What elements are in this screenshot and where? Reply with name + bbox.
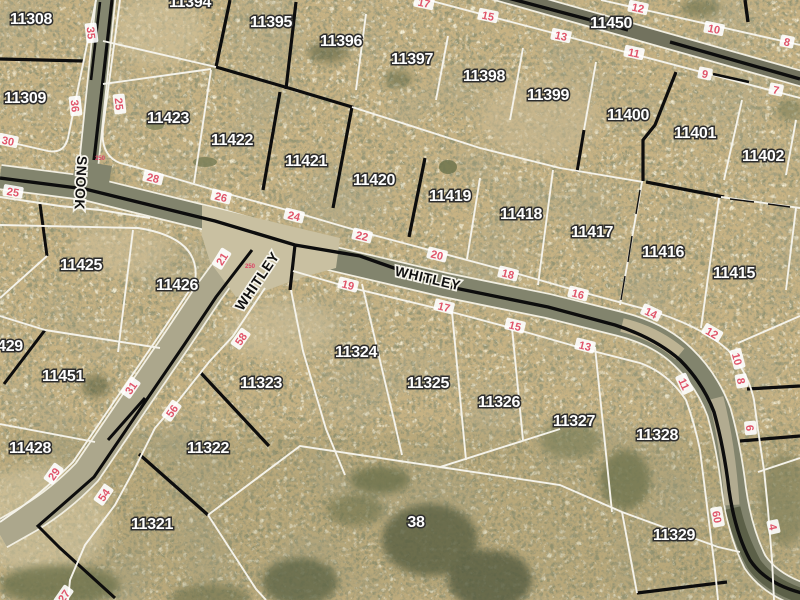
- svg-text:11308: 11308: [10, 11, 53, 28]
- svg-text:25: 25: [112, 97, 125, 110]
- svg-text:11399: 11399: [527, 87, 570, 104]
- svg-text:11416: 11416: [642, 244, 685, 261]
- svg-text:6: 6: [743, 424, 755, 431]
- svg-text:36: 36: [68, 99, 81, 112]
- svg-text:11400: 11400: [607, 107, 650, 124]
- svg-text:11325: 11325: [407, 375, 450, 392]
- svg-text:11402: 11402: [742, 148, 785, 165]
- svg-text:11425: 11425: [60, 257, 103, 274]
- svg-text:11394: 11394: [169, 0, 212, 11]
- svg-text:11395: 11395: [250, 14, 293, 31]
- svg-text:30: 30: [1, 135, 15, 149]
- svg-text:11321: 11321: [131, 516, 174, 533]
- svg-text:250: 250: [95, 156, 106, 162]
- svg-text:11327: 11327: [553, 413, 596, 430]
- svg-text:11426: 11426: [156, 277, 199, 294]
- svg-text:11322: 11322: [187, 440, 230, 457]
- svg-text:35: 35: [84, 26, 97, 39]
- svg-text:11420: 11420: [353, 172, 396, 189]
- svg-text:11421: 11421: [285, 153, 328, 170]
- svg-text:15: 15: [481, 10, 495, 24]
- svg-text:429: 429: [0, 338, 23, 355]
- svg-text:11428: 11428: [9, 440, 52, 457]
- svg-text:11397: 11397: [391, 51, 434, 68]
- svg-text:11423: 11423: [147, 110, 190, 127]
- svg-text:60: 60: [709, 510, 723, 524]
- svg-text:11419: 11419: [429, 188, 472, 205]
- svg-text:11: 11: [627, 47, 641, 61]
- svg-text:SNOOK: SNOOK: [72, 155, 91, 210]
- svg-text:11328: 11328: [636, 427, 679, 444]
- svg-text:11415: 11415: [713, 265, 756, 282]
- svg-text:25: 25: [6, 186, 20, 200]
- svg-text:12: 12: [631, 2, 645, 16]
- svg-text:11422: 11422: [211, 132, 254, 149]
- svg-text:11418: 11418: [500, 206, 543, 223]
- svg-text:11326: 11326: [478, 394, 521, 411]
- svg-text:11396: 11396: [320, 33, 363, 50]
- svg-text:11329: 11329: [653, 527, 696, 544]
- svg-text:11451: 11451: [42, 368, 85, 385]
- svg-text:11417: 11417: [571, 224, 614, 241]
- svg-text:11398: 11398: [463, 68, 506, 85]
- svg-text:11401: 11401: [674, 125, 717, 142]
- svg-text:38: 38: [407, 514, 425, 531]
- svg-text:11450: 11450: [590, 15, 633, 32]
- svg-text:250: 250: [245, 264, 256, 270]
- svg-text:10: 10: [707, 23, 721, 37]
- svg-text:13: 13: [554, 30, 568, 44]
- svg-text:11324: 11324: [335, 344, 378, 361]
- svg-text:11323: 11323: [240, 375, 283, 392]
- svg-text:11309: 11309: [4, 90, 47, 107]
